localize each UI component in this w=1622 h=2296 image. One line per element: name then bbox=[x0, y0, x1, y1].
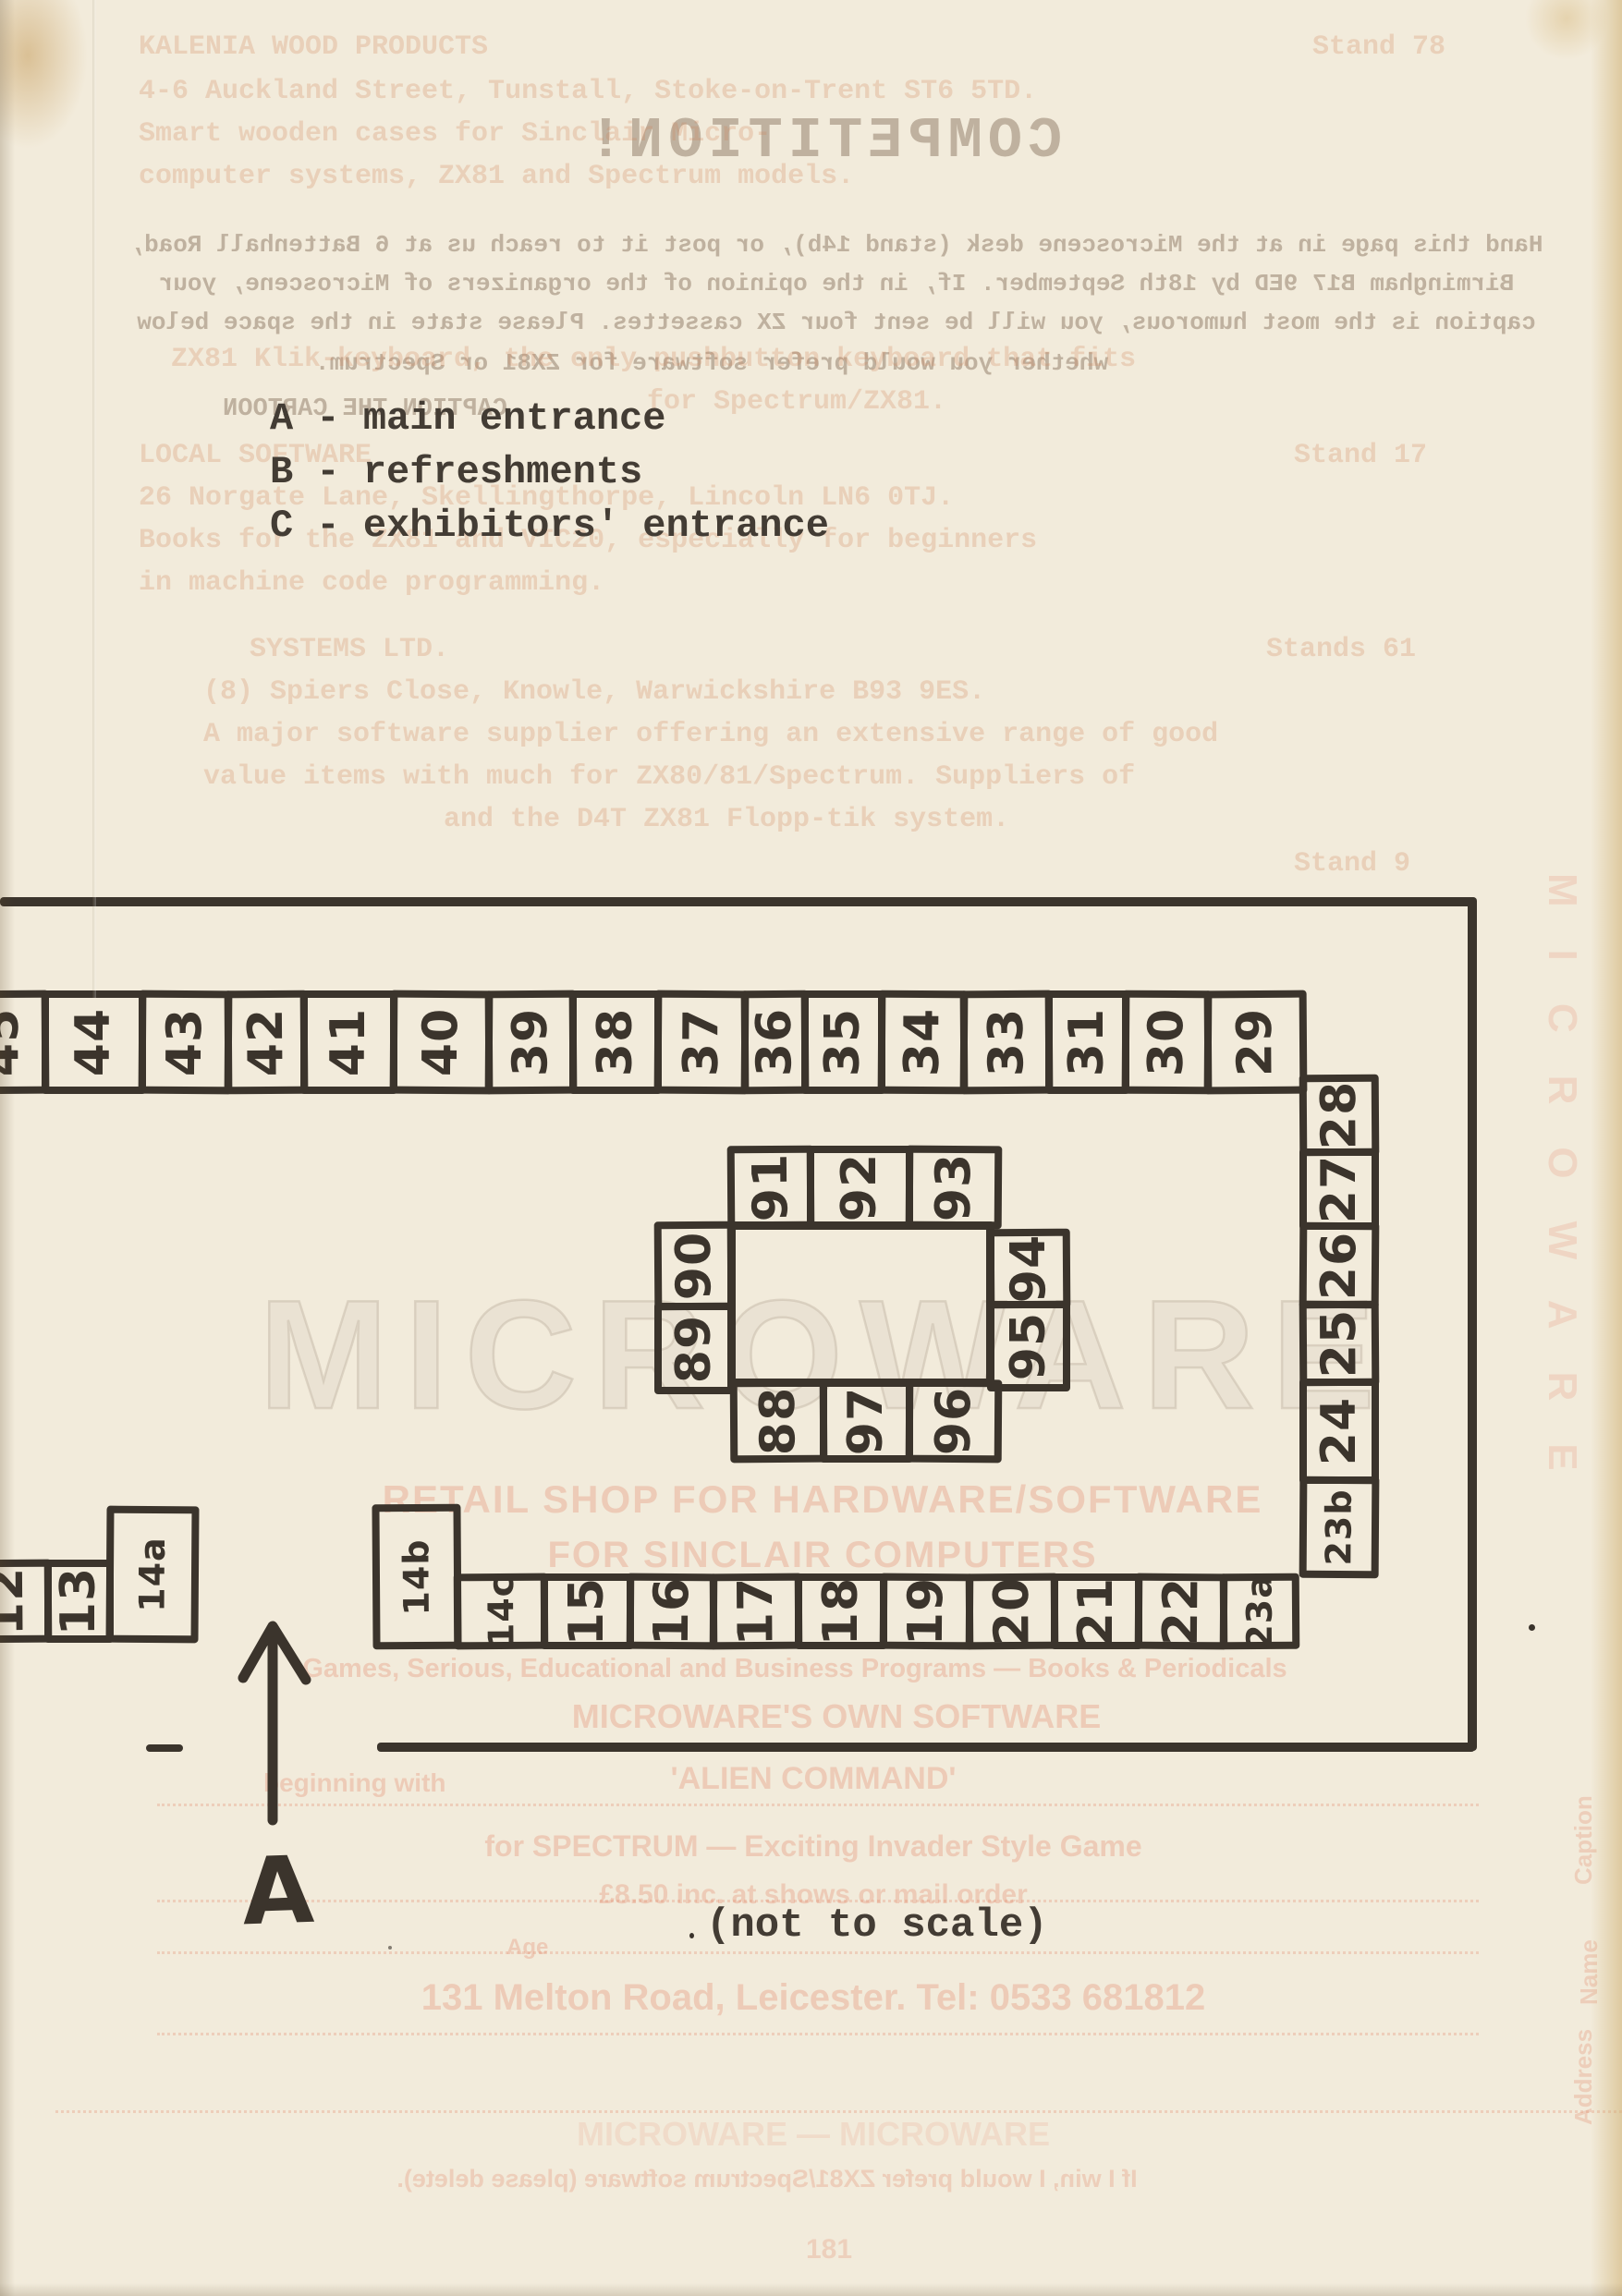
ghost-dotted-line bbox=[157, 2033, 1479, 2035]
stand-number: 40 bbox=[413, 1008, 470, 1077]
stand-box-14b: 14b bbox=[372, 1504, 461, 1650]
ghost-text: caption is the most humorous, you will b… bbox=[137, 310, 1535, 334]
legend-line-c: C - exhibitors' entrance bbox=[270, 506, 829, 545]
left-edge-shadow bbox=[0, 0, 15, 2296]
ink-speck bbox=[689, 1933, 694, 1938]
stand-box-38: 38 bbox=[569, 990, 662, 1094]
stand-number: 39 bbox=[503, 1008, 559, 1077]
entrance-arrow-icon bbox=[217, 1610, 337, 1827]
ghost-text: in machine code programming. bbox=[139, 569, 604, 597]
stand-number: 36 bbox=[747, 1008, 803, 1077]
ghost-text: Stands 61 bbox=[1266, 636, 1416, 663]
ghost-text: Stand 9 bbox=[1294, 850, 1410, 878]
stand-number: 19 bbox=[898, 1577, 955, 1646]
stand-box-97: 97 bbox=[820, 1379, 913, 1463]
ghost-text: 181 bbox=[806, 2236, 852, 2264]
stand-number: 16 bbox=[644, 1577, 701, 1646]
stand-box-14a: 14a bbox=[105, 1506, 199, 1644]
stand-number: 38 bbox=[588, 1008, 643, 1076]
stand-number: 27 bbox=[1311, 1155, 1367, 1223]
stand-number: 22 bbox=[1153, 1577, 1210, 1646]
paper-crease bbox=[92, 0, 96, 998]
stand-box-19: 19 bbox=[880, 1573, 974, 1650]
ghost-text: Age bbox=[506, 1937, 548, 1959]
stand-number: 14a bbox=[132, 1537, 174, 1612]
stand-box-36: 36 bbox=[741, 990, 810, 1095]
stand-box-31: 31 bbox=[1045, 990, 1129, 1094]
ghost-text: MICROWARE'S OWN SOFTWARE bbox=[572, 1700, 1102, 1733]
stand-box-44: 44 bbox=[42, 990, 146, 1094]
ghost-text: computer systems, ZX81 and Spectrum mode… bbox=[139, 163, 854, 190]
stand-box-94: 94 bbox=[987, 1229, 1071, 1309]
ghost-dotted-line bbox=[157, 1804, 1479, 1806]
ghost-text: Birmingham B17 9ED by 18th September. If… bbox=[159, 272, 1515, 296]
legend-line-b: B - refreshments bbox=[270, 453, 642, 492]
ghost-text: value items with much for ZX80/81/Spectr… bbox=[203, 763, 1135, 791]
stand-number: 14c bbox=[481, 1575, 522, 1648]
stand-box-18: 18 bbox=[795, 1573, 887, 1649]
stand-number: 94 bbox=[1001, 1234, 1057, 1304]
stand-box-22: 22 bbox=[1135, 1573, 1228, 1650]
stand-box-33: 33 bbox=[960, 990, 1054, 1095]
stand-number: 96 bbox=[926, 1387, 982, 1456]
stand-box-23b: 23b bbox=[1299, 1476, 1380, 1579]
ghost-text: Name bbox=[1577, 1939, 1601, 2005]
scale-note: (not to scale) bbox=[706, 1905, 1048, 1946]
stand-box-35: 35 bbox=[801, 990, 885, 1094]
stand-box-42: 42 bbox=[225, 990, 309, 1095]
ghost-text: MICROWARE bbox=[1542, 873, 1582, 1513]
ink-speck bbox=[1529, 1624, 1535, 1631]
ghost-text: FOR SINCLAIR COMPUTERS bbox=[547, 1537, 1097, 1573]
stand-box-96: 96 bbox=[906, 1379, 1003, 1464]
stand-number: 90 bbox=[666, 1232, 723, 1301]
stand-number: 93 bbox=[926, 1153, 982, 1222]
stand-box-27: 27 bbox=[1299, 1148, 1379, 1230]
stand-box-37: 37 bbox=[654, 990, 750, 1095]
stand-box-17: 17 bbox=[710, 1573, 803, 1650]
stand-number: 24 bbox=[1311, 1397, 1367, 1465]
stand-number: 91 bbox=[743, 1153, 799, 1222]
island-block bbox=[727, 1221, 994, 1387]
stand-number: 26 bbox=[1311, 1231, 1368, 1300]
stand-number: 41 bbox=[322, 1008, 377, 1076]
ghost-text: 'ALIEN COMMAND' bbox=[671, 1763, 957, 1794]
legend-line-a: A - main entrance bbox=[270, 399, 665, 438]
stand-number: 29 bbox=[1227, 1008, 1284, 1077]
stand-box-24: 24 bbox=[1299, 1379, 1379, 1484]
stand-box-16: 16 bbox=[627, 1573, 718, 1650]
stand-number: 18 bbox=[813, 1577, 869, 1646]
ghost-dotted-line bbox=[55, 2110, 1622, 2113]
ghost-text: MICROWARE — MICROWARE bbox=[577, 2118, 1050, 2151]
ink-speck bbox=[388, 1946, 392, 1950]
stand-box-95: 95 bbox=[987, 1301, 1070, 1391]
hall-boundary-right bbox=[1468, 897, 1477, 1751]
stand-number: 23a bbox=[1239, 1573, 1281, 1649]
stand-number: 89 bbox=[667, 1314, 723, 1382]
ghost-text: 131 Melton Road, Leicester. Tel: 0533 68… bbox=[421, 1979, 1206, 2016]
stand-box-39: 39 bbox=[485, 990, 578, 1095]
hall-boundary-top bbox=[0, 897, 1476, 906]
ghost-text: Caption bbox=[1571, 1795, 1595, 1885]
bottom-edge-shadow bbox=[0, 2283, 1622, 2296]
stand-box-13: 13 bbox=[44, 1560, 114, 1643]
ghost-text: If I win, I would prefer ZX81/Spectrum s… bbox=[396, 2167, 1137, 2192]
stand-box-40: 40 bbox=[390, 990, 494, 1095]
stand-number: 97 bbox=[839, 1387, 895, 1455]
stand-number: 25 bbox=[1311, 1309, 1368, 1379]
ghost-text: and the D4T ZX81 Flopp-tik system. bbox=[444, 806, 1009, 833]
stand-number: 42 bbox=[238, 1008, 295, 1077]
stand-box-89: 89 bbox=[654, 1303, 735, 1394]
stand-number: 20 bbox=[984, 1577, 1041, 1646]
stand-number: 14b bbox=[396, 1538, 438, 1615]
stain-top-right bbox=[1419, 0, 1622, 148]
stand-number: 31 bbox=[1060, 1008, 1116, 1076]
stand-number: 28 bbox=[1311, 1081, 1368, 1150]
stand-box-30: 30 bbox=[1122, 990, 1213, 1095]
stand-box-88: 88 bbox=[730, 1379, 828, 1464]
stand-box-28: 28 bbox=[1299, 1075, 1380, 1157]
ghost-text: (8) Spiers Close, Knowle, Warwickshire B… bbox=[203, 678, 985, 706]
ghost-text: A major software supplier offering an ex… bbox=[203, 721, 1218, 748]
hall-boundary-bottom-stub bbox=[146, 1744, 183, 1752]
stand-box-21: 21 bbox=[1051, 1573, 1142, 1649]
stand-number: 92 bbox=[833, 1153, 888, 1221]
stand-box-23a: 23a bbox=[1220, 1573, 1300, 1650]
stand-number: 37 bbox=[674, 1008, 730, 1077]
ghost-text: Smart wooden cases for Sinclair Micro- bbox=[139, 120, 771, 148]
ghost-dotted-line bbox=[157, 1951, 1479, 1954]
stand-number: 13 bbox=[52, 1567, 107, 1635]
stand-number: 43 bbox=[157, 1008, 213, 1077]
stand-number: 30 bbox=[1139, 1008, 1195, 1077]
entrance-a-label: A bbox=[240, 1836, 315, 1947]
stand-number: 95 bbox=[1001, 1312, 1056, 1380]
hall-boundary-bottom bbox=[377, 1743, 1475, 1752]
stand-box-20: 20 bbox=[966, 1573, 1059, 1650]
ghost-text: for SPECTRUM — Exciting Invader Style Ga… bbox=[484, 1831, 1141, 1861]
stand-number: 12 bbox=[0, 1567, 34, 1636]
ghost-text: Games, Serious, Educational and Business… bbox=[302, 1656, 1287, 1683]
stand-box-34: 34 bbox=[878, 990, 969, 1095]
stand-number: 88 bbox=[750, 1387, 807, 1456]
stand-number: 17 bbox=[728, 1577, 785, 1646]
ghost-text: for Spectrum/ZX81. bbox=[647, 388, 946, 416]
stand-number: 35 bbox=[816, 1008, 872, 1076]
stand-box-15: 15 bbox=[541, 1573, 634, 1649]
stand-number: 33 bbox=[979, 1008, 1035, 1077]
ghost-text: 4-6 Auckland Street, Tunstall, Stoke-on-… bbox=[139, 78, 1037, 105]
stand-number: 23b bbox=[1319, 1488, 1360, 1565]
stand-box-29: 29 bbox=[1204, 990, 1308, 1095]
stand-box-91: 91 bbox=[727, 1146, 815, 1230]
ghost-text: KALENIA WOOD PRODUCTS bbox=[139, 33, 488, 61]
stand-box-25: 25 bbox=[1299, 1301, 1380, 1387]
scanned-magazine-page: COMPETITION!Hand this page in at the Mic… bbox=[0, 0, 1622, 2296]
ghost-text: Stand 17 bbox=[1294, 442, 1427, 469]
stand-box-14c: 14c bbox=[454, 1573, 549, 1650]
stand-box-41: 41 bbox=[300, 990, 397, 1094]
ghost-text: ZX81 Klik-keyboard, the only pushbutton … bbox=[171, 346, 1136, 373]
stand-number: 44 bbox=[67, 1008, 122, 1076]
ghost-text: RETAIL SHOP FOR HARDWARE/SOFTWARE bbox=[383, 1480, 1263, 1519]
stand-number: 15 bbox=[560, 1577, 616, 1646]
stand-box-92: 92 bbox=[807, 1146, 913, 1229]
stand-box-90: 90 bbox=[654, 1221, 736, 1311]
stand-box-43: 43 bbox=[139, 990, 233, 1095]
stand-number: 45 bbox=[0, 1008, 30, 1077]
ghost-text: Hand this page in at the Microscene desk… bbox=[129, 233, 1543, 257]
stand-box-93: 93 bbox=[906, 1146, 1003, 1230]
ghost-text: Stand 78 bbox=[1312, 33, 1445, 61]
ghost-text: SYSTEMS LTD. bbox=[250, 636, 449, 663]
stand-number: 21 bbox=[1069, 1577, 1125, 1646]
stand-number: 34 bbox=[895, 1008, 951, 1077]
stand-box-26: 26 bbox=[1299, 1222, 1380, 1309]
